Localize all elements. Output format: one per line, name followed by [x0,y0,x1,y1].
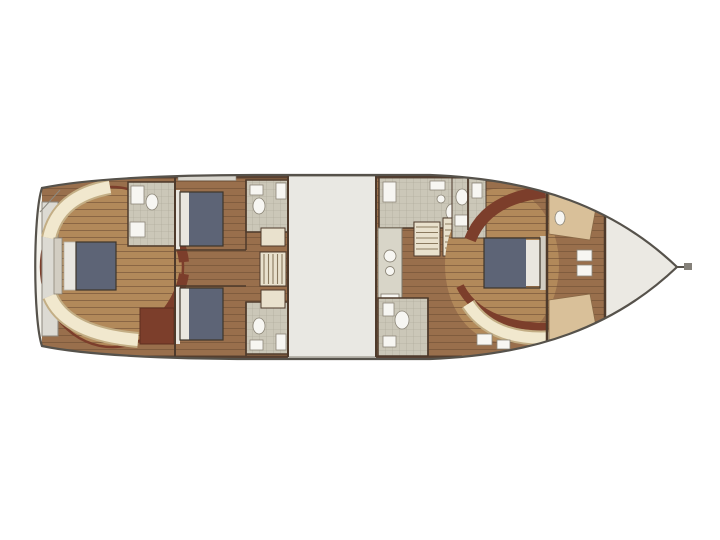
guest-lower-bed-pillows [180,288,189,340]
day-head-lower-sink [383,336,396,347]
vip-nightstand-right [497,340,510,349]
guest-head-upper-toilet [253,198,265,214]
vip-bed-mattress [484,238,526,288]
vip-bed-headboard [540,236,546,290]
guest-head-lower-toilet [253,318,265,334]
crew-berth-lower [549,294,596,342]
vip-head-sink [455,215,468,226]
crew-toilet [555,211,565,225]
aft-lobby-cabinet-top [261,228,285,246]
guest-head-upper-sink [250,185,263,195]
day-head-lower-toilet [395,311,409,329]
guest-lower-bed-mattress [189,288,223,340]
master-head-sink [131,186,144,204]
crew-locker [577,265,592,276]
master-bed-headboard [54,238,62,294]
vip-head-cabinet [472,183,482,198]
bowsprit-fitting [684,263,692,270]
guest-head-lower-cabinet [276,334,286,350]
master-head-toilet [146,194,158,210]
master-head-shower [130,222,145,237]
master-bed-mattress [76,242,116,290]
day-head-upper-sink [430,181,445,190]
guest-upper-bed-mattress [189,192,223,246]
day-head-upper-basin [437,195,445,203]
vip-bed-pillows [526,240,540,286]
guest-head-upper-cabinet [276,183,286,199]
master-bed-pillows [64,242,76,290]
crew-sink [577,250,592,261]
day-head-upper-shower [383,182,396,202]
day-head-lower-cabinet [383,303,394,316]
saloon-casing-block [288,176,376,357]
master-wardrobe [140,308,174,344]
galley-sink-small [386,267,395,276]
galley-sink [384,250,396,262]
yacht-floorplan-svg [0,0,720,540]
vip-nightstand-left [477,334,492,345]
yacht-floorplan-page [0,0,720,540]
guest-head-lower-sink [250,340,263,350]
aft-lobby-cabinet-bottom [261,290,285,308]
vip-head-toilet [456,189,468,205]
guest-upper-bed-pillows [180,192,189,246]
